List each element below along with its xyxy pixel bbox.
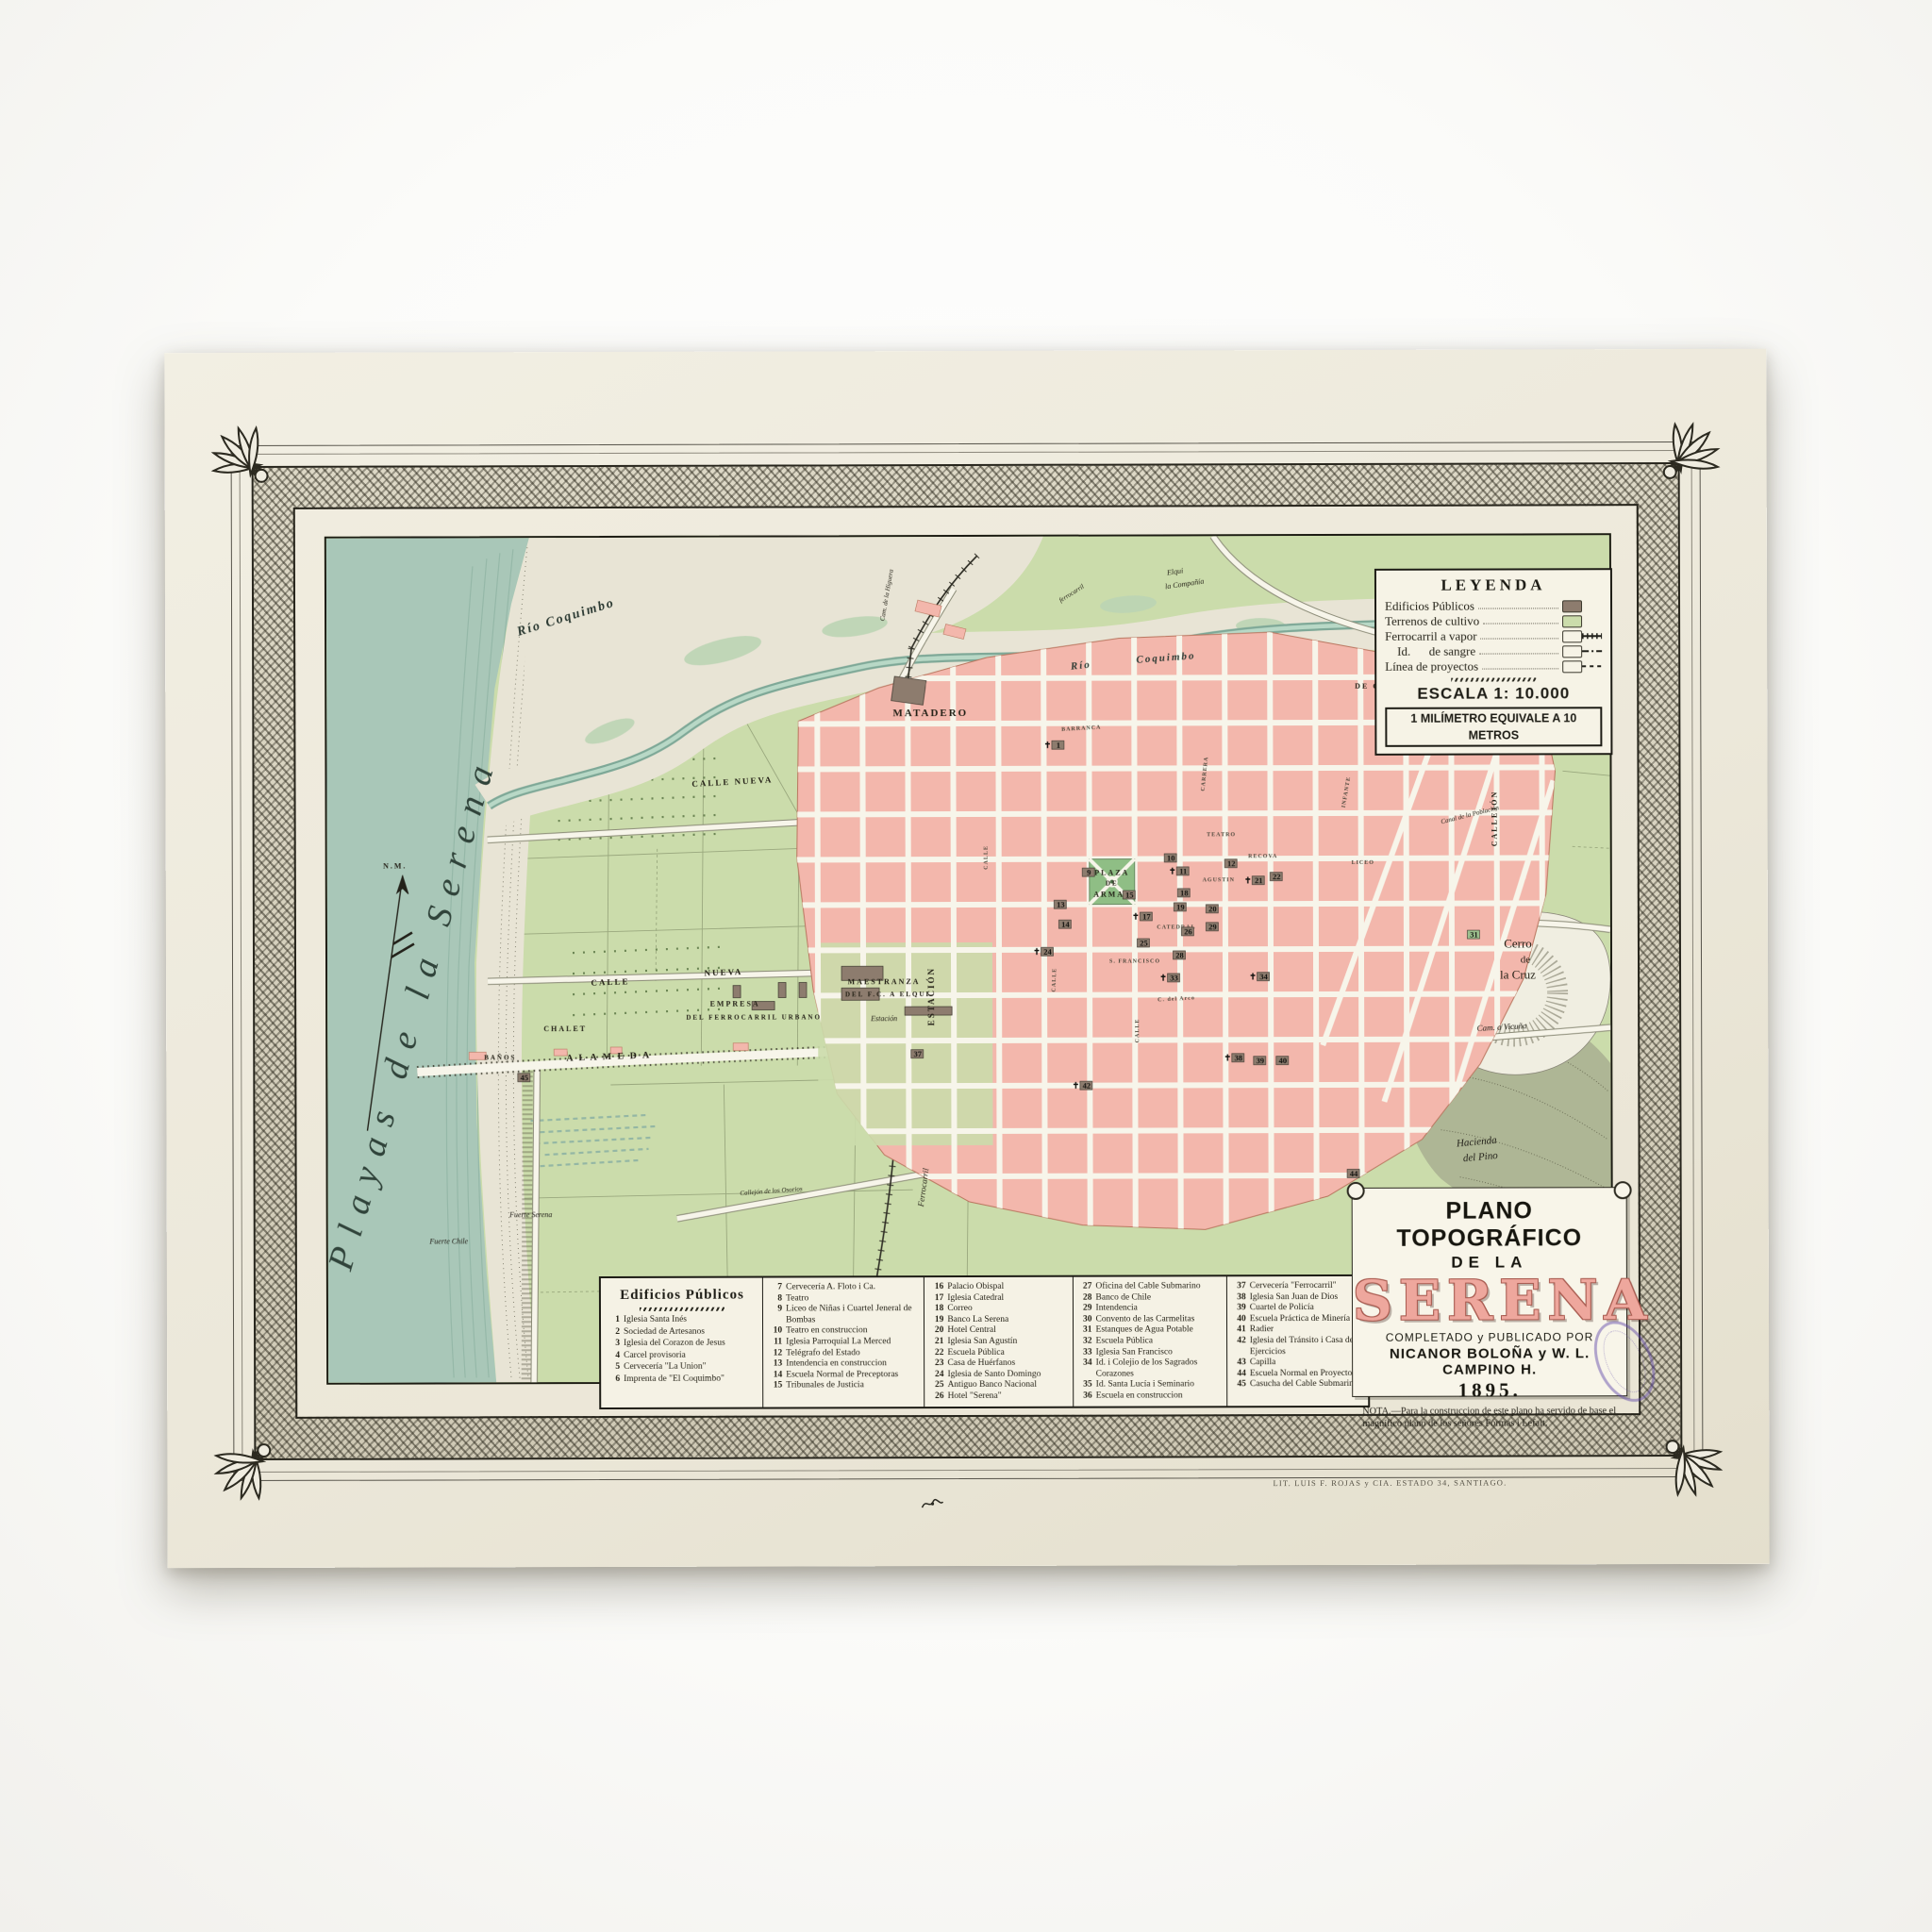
church-cross-icon: ✝ bbox=[1244, 875, 1252, 885]
index-item: 33Iglesia San Francisco bbox=[1078, 1347, 1223, 1358]
legend-leader bbox=[1481, 629, 1559, 639]
building-number: 40 bbox=[1279, 1056, 1288, 1065]
numbered-building: 20 bbox=[1206, 905, 1218, 914]
legend-sample bbox=[1562, 630, 1602, 641]
index-item: 30Convento de las Carmelitas bbox=[1078, 1314, 1223, 1325]
legend-leader bbox=[1478, 599, 1558, 608]
numbered-building: 45 bbox=[518, 1073, 530, 1082]
map-label: S. FRANCISCO bbox=[1109, 958, 1160, 964]
numbered-building: 44 bbox=[1347, 1169, 1359, 1178]
index-item: 40Escuela Práctica de Minería bbox=[1232, 1314, 1364, 1325]
map-year: 1895. bbox=[1353, 1378, 1626, 1403]
building-number: 13 bbox=[1057, 900, 1065, 909]
map-label: N.M. bbox=[383, 862, 407, 871]
numbered-building: ✝38 bbox=[1224, 1053, 1243, 1062]
map-label: CHALET bbox=[543, 1024, 587, 1033]
numbered-building: ✝21 bbox=[1244, 875, 1264, 885]
map-label: CALLE bbox=[984, 845, 990, 870]
index-item: 6Imprenta de "El Coquimbo" bbox=[606, 1373, 758, 1385]
map-label: la Cruz bbox=[1500, 967, 1536, 981]
index-column: 16Palacio Obispal17Iglesia Catedral18Cor… bbox=[924, 1277, 1073, 1407]
numbered-building: 39 bbox=[1254, 1056, 1266, 1065]
scale-box: 1 MILÍMETRO EQUIVALE A 10 METROS bbox=[1385, 707, 1602, 747]
index-item: 19Banco La Serena bbox=[929, 1315, 1068, 1326]
index-item: 43Capilla bbox=[1232, 1357, 1364, 1369]
legend-panel: LEYENDA Edificios Públicos Terrenos de c… bbox=[1374, 568, 1613, 756]
building-number: 1 bbox=[1057, 741, 1060, 750]
numbered-building: ✝1 bbox=[1044, 741, 1064, 750]
building-number: 26 bbox=[1184, 927, 1192, 937]
map-label: DE bbox=[1106, 880, 1119, 888]
numbered-building: 10 bbox=[1164, 854, 1176, 863]
building-number: 22 bbox=[1273, 872, 1281, 881]
building-number: 17 bbox=[1142, 912, 1151, 922]
title-cartouche: PLANO TOPOGRÁFICO DE LA SERENA COMPLETAD… bbox=[1352, 1187, 1628, 1397]
numbered-building: 13 bbox=[1054, 900, 1066, 909]
building-number: 34 bbox=[1259, 972, 1268, 981]
index-item: 11Iglesia Parroquial La Merced bbox=[768, 1337, 920, 1348]
index-item: 27Oficina del Cable Submarino bbox=[1077, 1281, 1222, 1292]
legend-item-label: Edificios Públicos bbox=[1385, 599, 1474, 614]
index-column: 7Cervecería A. Floto i Ca.8Teatro9Liceo … bbox=[762, 1277, 924, 1407]
numbered-building: 31 bbox=[1467, 930, 1479, 940]
index-item: 16Palacio Obispal bbox=[929, 1282, 1068, 1293]
index-item: 3Iglesia del Corazon de Jesus bbox=[606, 1338, 758, 1350]
building-number: 38 bbox=[1235, 1053, 1243, 1062]
numbered-building: 18 bbox=[1177, 889, 1190, 898]
building-number: 33 bbox=[1170, 974, 1178, 983]
index-item: 38Iglesia San Juan de Dios bbox=[1232, 1291, 1364, 1303]
index-item: 39Cuartel de Policía bbox=[1232, 1303, 1364, 1314]
map-title-serena: SERENA bbox=[1353, 1272, 1626, 1329]
building-number: 24 bbox=[1043, 947, 1052, 957]
index-item: 18Correo bbox=[929, 1304, 1068, 1315]
scale-text: ESCALA 1: 10.000 bbox=[1385, 684, 1602, 704]
map-label: Fuerte Chile bbox=[428, 1237, 468, 1245]
building-number: 39 bbox=[1257, 1056, 1265, 1065]
map-label: LICEO bbox=[1352, 860, 1374, 866]
map-label: NUEVA bbox=[704, 967, 742, 978]
index-column: Edificios Públicos 1Iglesia Santa Inés2S… bbox=[601, 1278, 763, 1407]
lithographer-imprint: LIT. LUIS F. ROJAS y CIA. ESTADO 34, SAN… bbox=[1224, 1478, 1507, 1489]
church-cross-icon: ✝ bbox=[1132, 912, 1140, 922]
church-cross-icon: ✝ bbox=[1159, 973, 1167, 982]
map-label: CALLE bbox=[591, 976, 629, 988]
corner-ornament-icon bbox=[210, 1417, 297, 1504]
numbered-building: 22 bbox=[1270, 872, 1282, 881]
index-item: 41Radier bbox=[1232, 1324, 1364, 1336]
building-number: 11 bbox=[1179, 867, 1187, 876]
index-title: Edificios Públicos bbox=[606, 1288, 758, 1304]
index-item: 12Telégrafo del Estado bbox=[768, 1348, 920, 1359]
map-label: Estación bbox=[870, 1014, 897, 1023]
index-item: 13Intendencia en construccion bbox=[768, 1358, 920, 1370]
index-item: 21Iglesia San Agustín bbox=[929, 1337, 1068, 1348]
buildings-index: Edificios Públicos 1Iglesia Santa Inés2S… bbox=[599, 1274, 1370, 1409]
printers-mark-icon bbox=[920, 1496, 944, 1511]
index-item: 32Escuela Pública bbox=[1078, 1336, 1223, 1347]
index-item: 9Liceo de Niñas i Cuartel Jeneral de Bom… bbox=[768, 1304, 920, 1326]
numbered-building: ✝42 bbox=[1073, 1081, 1092, 1091]
map-label: Río bbox=[1069, 659, 1091, 673]
index-item: 34Id. i Colejio de los Sagrados Corazone… bbox=[1078, 1357, 1223, 1380]
building-number: 28 bbox=[1175, 951, 1184, 960]
scale-equivalence: 1 MILÍMETRO EQUIVALE A 10 METROS bbox=[1410, 711, 1576, 741]
legend-item-label: Ferrocarril a vapor bbox=[1385, 629, 1476, 644]
publisher-line: COMPLETADO y PUBLICADO POR bbox=[1353, 1330, 1626, 1344]
legend-item: Ferrocarril a vapor bbox=[1385, 628, 1602, 644]
numbered-building: 26 bbox=[1181, 927, 1193, 937]
index-item: 17Iglesia Catedral bbox=[929, 1292, 1068, 1304]
numbered-building: ✝11 bbox=[1169, 866, 1189, 875]
numbered-building: 29 bbox=[1206, 923, 1218, 932]
map-sheet: ✝ bbox=[164, 349, 1769, 1568]
numbered-building: 40 bbox=[1276, 1056, 1289, 1065]
corner-ornament-icon bbox=[1639, 1413, 1725, 1500]
index-item: 31Estanques de Agua Potable bbox=[1078, 1325, 1223, 1337]
numbered-building: 14 bbox=[1058, 920, 1071, 929]
building-number: 12 bbox=[1227, 858, 1236, 868]
numbered-building: 37 bbox=[911, 1049, 924, 1058]
legend-item: Línea de proyectos bbox=[1385, 658, 1602, 675]
map-label: EMPRESA bbox=[710, 1000, 760, 1008]
index-item: 44Escuela Normal en Proyecto bbox=[1232, 1369, 1364, 1380]
legend-item: Id. de sangre bbox=[1385, 643, 1602, 659]
index-item: 35Id. Santa Lucía i Seminario bbox=[1078, 1380, 1223, 1391]
numbered-building: 9 bbox=[1082, 868, 1094, 877]
index-item: 15Tribunales de Justicia bbox=[768, 1380, 920, 1391]
church-cross-icon: ✝ bbox=[1044, 741, 1052, 750]
legend-item-label: Línea de proyectos bbox=[1385, 659, 1478, 675]
building-number: 20 bbox=[1208, 905, 1217, 914]
index-column: 37Cervecería "Ferrocarril"38Iglesia San … bbox=[1226, 1276, 1369, 1406]
numbered-building: 12 bbox=[1224, 858, 1237, 868]
map-label: CALLE bbox=[1052, 968, 1058, 992]
numbered-building: ✝17 bbox=[1132, 911, 1152, 921]
corner-ornament-icon bbox=[1637, 419, 1724, 506]
index-item: 2Sociedad de Artesanos bbox=[606, 1325, 758, 1338]
building-number: 37 bbox=[914, 1049, 923, 1058]
legend-item-label: Terrenos de cultivo bbox=[1385, 614, 1479, 629]
legend-leader bbox=[1483, 614, 1558, 624]
building-number: 10 bbox=[1167, 854, 1175, 863]
index-item: 20Hotel Central bbox=[929, 1325, 1068, 1337]
map-label: RECOVA bbox=[1248, 854, 1277, 859]
church-cross-icon: ✝ bbox=[1224, 1053, 1231, 1062]
index-item: 5Cervecería "La Union" bbox=[606, 1361, 758, 1374]
index-item: 23Casa de Huérfanos bbox=[929, 1358, 1068, 1370]
numbered-building: 25 bbox=[1137, 939, 1149, 948]
numbered-building: 19 bbox=[1174, 903, 1186, 912]
building-number: 9 bbox=[1087, 868, 1091, 877]
index-item: 4Carcel provisoria bbox=[606, 1349, 758, 1361]
building-number: 45 bbox=[521, 1073, 529, 1082]
building-number: 15 bbox=[1125, 891, 1134, 900]
index-item: 22Escuela Pública bbox=[929, 1347, 1068, 1358]
index-item: 1Iglesia Santa Inés bbox=[606, 1314, 758, 1326]
index-item: 36Escuela en construccion bbox=[1078, 1391, 1223, 1402]
map-label: CALLE bbox=[1135, 1019, 1141, 1043]
building-number: 19 bbox=[1176, 903, 1185, 912]
church-cross-icon: ✝ bbox=[1073, 1081, 1080, 1091]
numbered-building: 28 bbox=[1173, 951, 1185, 960]
map-label: DEL FERROCARRIL URBANO bbox=[686, 1013, 822, 1021]
map-label: de bbox=[1521, 954, 1531, 965]
index-item: 14Escuela Normal de Preceptoras bbox=[768, 1370, 920, 1381]
numbered-building: ✝24 bbox=[1033, 947, 1053, 957]
map-label: TEATRO bbox=[1207, 832, 1236, 838]
church-cross-icon: ✝ bbox=[1169, 866, 1176, 875]
index-item: 28Banco de Chile bbox=[1077, 1292, 1222, 1304]
index-item: 24Iglesia de Santo Domingo bbox=[929, 1369, 1068, 1380]
map-label: AGUSTIN bbox=[1203, 877, 1235, 883]
map-label: MATADERO bbox=[892, 708, 968, 719]
legend-sample bbox=[1562, 615, 1602, 626]
index-item: 25Antiguo Banco Nacional bbox=[929, 1380, 1068, 1391]
photo-canvas: { "colors":{"paper":"#ece8da","sea":"#a9… bbox=[0, 0, 1932, 1932]
legend-item-label: Id. de sangre bbox=[1385, 644, 1475, 659]
map-label: ESTACIÓN bbox=[926, 967, 936, 1025]
divider-squiggle bbox=[640, 1307, 724, 1311]
building-number: 14 bbox=[1061, 920, 1070, 929]
building-number: 42 bbox=[1083, 1081, 1091, 1091]
map-label: PLAZA bbox=[1094, 869, 1129, 877]
legend-item: Terrenos de cultivo bbox=[1385, 613, 1602, 629]
index-column: 27Oficina del Cable Submarino28Banco de … bbox=[1072, 1276, 1226, 1406]
legend-leader bbox=[1479, 644, 1558, 654]
numbered-building: ✝34 bbox=[1249, 972, 1269, 981]
map-label: DEL F.C. A ELQUI bbox=[845, 991, 930, 998]
index-item: 10Teatro en construccion bbox=[768, 1326, 920, 1338]
map-label: BAÑOS bbox=[484, 1054, 516, 1061]
matadero-building bbox=[891, 676, 926, 705]
index-item: 26Hotel "Serena" bbox=[930, 1391, 1069, 1403]
index-item: 7Cervecería A. Floto i Ca. bbox=[768, 1282, 920, 1293]
building-number: 31 bbox=[1470, 930, 1478, 940]
map-note: NOTA.—Para la construccion de este plano… bbox=[1362, 1406, 1617, 1430]
map-label: Fuerte Serena bbox=[508, 1210, 552, 1219]
numbered-building: ✝33 bbox=[1159, 973, 1179, 982]
legend-items: Edificios Públicos Terrenos de cultivo F… bbox=[1385, 598, 1602, 675]
map-label: MAESTRANZA bbox=[848, 977, 921, 986]
index-item: 45Casucha del Cable Submarino. bbox=[1232, 1379, 1364, 1391]
map-label: CALLEJÓN bbox=[1490, 791, 1499, 847]
legend-leader bbox=[1482, 659, 1558, 669]
building-number: 21 bbox=[1255, 875, 1263, 885]
index-item: 42Iglesia del Tránsito i Casa de Ejercic… bbox=[1232, 1336, 1364, 1358]
index-item: 8Teatro bbox=[768, 1293, 920, 1305]
legend-item: Edificios Públicos bbox=[1385, 598, 1602, 614]
index-item: 29Intendencia bbox=[1078, 1303, 1223, 1314]
index-item: 37Cervecería "Ferrocarril" bbox=[1232, 1281, 1364, 1292]
building-number: 29 bbox=[1208, 923, 1217, 932]
church-cross-icon: ✝ bbox=[1249, 972, 1257, 981]
map-title-line1: PLANO TOPOGRÁFICO bbox=[1353, 1197, 1626, 1253]
legend-sample bbox=[1562, 660, 1602, 672]
legend-sample bbox=[1562, 645, 1602, 657]
corner-ornament-icon bbox=[208, 423, 295, 509]
legend-title: LEYENDA bbox=[1385, 575, 1602, 595]
building-number: 25 bbox=[1140, 939, 1148, 948]
church-cross-icon: ✝ bbox=[1033, 947, 1041, 957]
authors-line: NICANOR BOLOÑA y W. L. CAMPINO H. bbox=[1353, 1345, 1626, 1378]
numbered-building: 15 bbox=[1123, 891, 1135, 900]
legend-sample bbox=[1562, 600, 1602, 611]
divider-squiggle bbox=[1451, 677, 1536, 681]
map-label: Cerro bbox=[1504, 936, 1532, 950]
building-number: 44 bbox=[1350, 1169, 1358, 1178]
building-number: 18 bbox=[1180, 889, 1189, 898]
